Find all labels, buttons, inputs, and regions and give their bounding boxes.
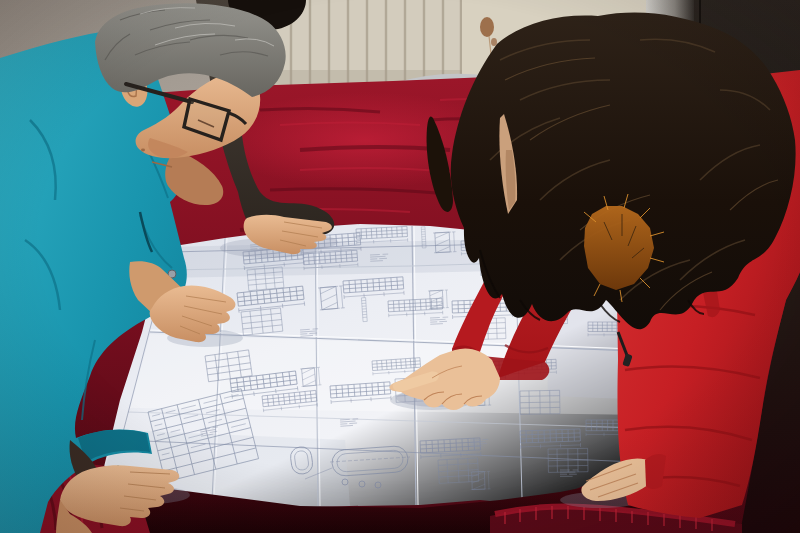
vignette [0, 0, 800, 533]
scene-canvas [0, 0, 800, 533]
photo-scene [0, 0, 800, 533]
